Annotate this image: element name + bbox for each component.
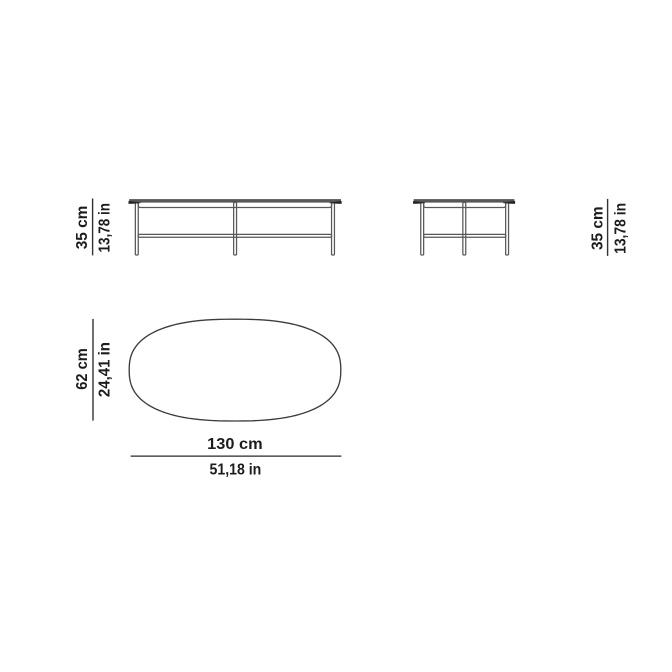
svg-text:13,78 in: 13,78 in bbox=[97, 203, 114, 253]
svg-text:130 cm: 130 cm bbox=[207, 436, 262, 453]
svg-text:35 cm: 35 cm bbox=[589, 206, 606, 250]
svg-text:24,41 in: 24,41 in bbox=[97, 342, 114, 397]
svg-text:51,18 in: 51,18 in bbox=[210, 461, 262, 478]
svg-text:35 cm: 35 cm bbox=[74, 206, 91, 250]
svg-text:62 cm: 62 cm bbox=[74, 348, 91, 390]
svg-text:13,78 in: 13,78 in bbox=[612, 203, 629, 254]
